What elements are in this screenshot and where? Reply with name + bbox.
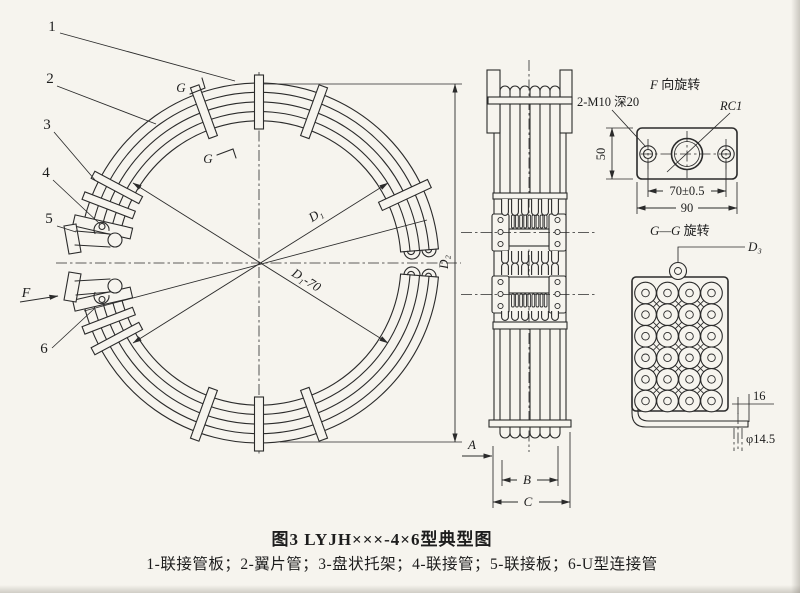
view-label-f: F — [21, 286, 31, 301]
leader-d3 — [678, 247, 745, 262]
gg-tube-inner — [708, 376, 716, 384]
connection-tube-end — [108, 279, 122, 293]
part-label-5: 5 — [45, 211, 53, 227]
technical-drawing: 1 2 3 4 5 6 F G G D₁ D₁-70 D₂ A B C F 向旋… — [0, 0, 800, 593]
gg-tube-inner — [664, 332, 672, 340]
bolt — [498, 229, 503, 234]
bolt — [555, 303, 560, 308]
tube-fingers — [502, 263, 559, 275]
support-band — [493, 322, 567, 329]
fin — [520, 294, 523, 307]
fin — [540, 215, 543, 228]
part-label-1: 1 — [48, 19, 56, 35]
support-bracket — [190, 85, 217, 139]
support-bracket — [190, 387, 217, 441]
detail-f-title: F 向旋转 — [649, 77, 700, 92]
fin — [516, 215, 519, 228]
fin — [544, 215, 547, 228]
fin — [512, 215, 515, 228]
gg-tube-inner — [664, 311, 672, 319]
part-label-6: 6 — [40, 341, 48, 357]
support-band — [493, 193, 567, 199]
gg-tube-inner — [664, 397, 672, 405]
gg-tube-inner — [708, 289, 716, 297]
coil-arc — [112, 112, 410, 252]
thread-note: 2-M10 深20 — [577, 95, 639, 109]
leader-1 — [60, 33, 235, 81]
connection-plate — [64, 272, 81, 302]
bolt — [498, 303, 503, 308]
bolt — [555, 217, 560, 222]
section-label-g-bottom: G — [203, 151, 213, 166]
dim-label-d3: D₃ — [747, 239, 762, 254]
tube-fingers — [502, 251, 559, 263]
gg-tube-inner — [686, 354, 694, 362]
fin — [528, 294, 531, 307]
support-bracket — [255, 397, 264, 451]
gg-tube-inner — [686, 311, 694, 319]
coil-arc — [112, 275, 410, 415]
fin — [528, 215, 531, 228]
bolt — [498, 279, 503, 284]
dim-label-a: A — [467, 437, 476, 452]
support-bracket — [255, 75, 264, 129]
support-bracket — [301, 85, 328, 139]
support-band — [489, 420, 571, 427]
dim-label-d1: D₁ — [305, 205, 326, 226]
coil-arc — [122, 274, 401, 405]
bolt — [555, 229, 560, 234]
drawing-page: 1 2 3 4 5 6 F G G D₁ D₁-70 D₂ A B C F 向旋… — [0, 0, 800, 593]
top-ubends — [500, 86, 560, 97]
dim-label-hole-dia: φ14.5 — [746, 432, 775, 446]
gg-tube-inner — [708, 397, 716, 405]
part-label-4: 4 — [42, 165, 50, 181]
gg-tube-inner — [664, 376, 672, 384]
gg-tube-inner — [642, 354, 650, 362]
connection-tube — [509, 277, 549, 293]
fin — [540, 294, 543, 307]
dim-label-70: 70±0.5 — [670, 184, 705, 198]
fin — [520, 215, 523, 228]
detail-f-view — [606, 110, 737, 214]
gg-tube-inner — [664, 289, 672, 297]
connection-plate — [64, 224, 81, 254]
gg-tube-inner — [686, 376, 694, 384]
gg-tube-inner — [686, 289, 694, 297]
dim-label-d2: D₂ — [436, 255, 451, 270]
fin — [544, 294, 547, 307]
coil-arc — [122, 121, 401, 252]
gg-tube-inner — [686, 332, 694, 340]
fin — [532, 215, 535, 228]
bolt — [555, 241, 560, 246]
leader-3 — [54, 132, 95, 180]
dim-label-90: 90 — [681, 201, 694, 215]
bolt — [498, 291, 503, 296]
detail-gg-title-text: 旋转 — [680, 223, 709, 238]
gg-tube-inner — [708, 332, 716, 340]
gg-tube-inner — [708, 311, 716, 319]
centerlines — [56, 60, 529, 455]
connection-tube — [509, 229, 549, 246]
gg-tube-inner — [686, 397, 694, 405]
bolt — [498, 217, 503, 222]
gg-tube-inner — [708, 354, 716, 362]
dim-label-16: 16 — [753, 389, 766, 403]
gg-tube-inner — [642, 397, 650, 405]
detail-gg-title: G—G 旋转 — [650, 223, 710, 238]
fin — [524, 294, 527, 307]
detail-f-title-text: 向旋转 — [658, 77, 700, 92]
fin — [532, 294, 535, 307]
bolt — [555, 279, 560, 284]
dim-label-c: C — [524, 494, 533, 509]
rc-note: RC1 — [719, 99, 742, 113]
detail-gg-title-letters: G—G — [650, 223, 681, 238]
fin — [516, 294, 519, 307]
gg-tube-inner — [642, 332, 650, 340]
parts-list: 1-联接管板；2-翼片管；3-盘状托架；4-联接管；5-联接板；6-U型连接管 — [146, 554, 657, 573]
fin — [536, 215, 539, 228]
tube-fingers — [502, 199, 559, 215]
dim-label-b: B — [523, 472, 531, 487]
gg-tube-inner — [642, 289, 650, 297]
part-label-3: 3 — [43, 117, 51, 133]
part-label-2: 2 — [46, 71, 54, 87]
gg-tube-inner — [664, 354, 672, 362]
support-bracket — [301, 387, 328, 441]
gg-tube-inner — [642, 376, 650, 384]
connection-tube-end — [108, 233, 122, 247]
fin — [524, 215, 527, 228]
fin — [536, 294, 539, 307]
bottom-ubends — [500, 427, 560, 438]
bolt — [498, 241, 503, 246]
figure-caption: 图3 LYJH×××-4×6型典型图 — [272, 529, 493, 549]
section-label-g-top: G — [176, 80, 186, 95]
dim-label-d1-70: D₁-70 — [288, 265, 324, 295]
gg-tie-rod — [670, 263, 687, 280]
dim-label-50: 50 — [594, 148, 608, 161]
construction-line — [84, 220, 427, 311]
fin — [512, 294, 515, 307]
gg-tube-inner — [642, 311, 650, 319]
support-band — [488, 97, 572, 104]
leader-2 — [57, 86, 156, 124]
bolt — [555, 291, 560, 296]
